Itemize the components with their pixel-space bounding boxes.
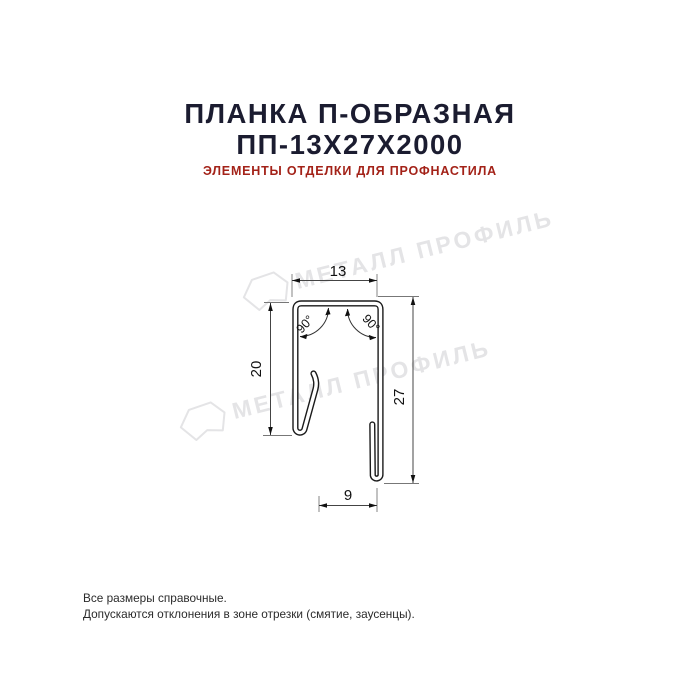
footer-note-line2: Допускаются отклонения в зоне отрезки (с… [83, 607, 415, 623]
dimension-right-height: 27 [378, 297, 419, 484]
footer-notes: Все размеры справочные. Допускаются откл… [83, 591, 415, 622]
metall-profil-logo-icon [177, 400, 230, 443]
dimension-bottom-opening: 9 [319, 487, 377, 512]
footer-note-line1: Все размеры справочные. [83, 591, 415, 607]
dimension-label-20: 20 [248, 361, 265, 378]
dimension-label-27: 27 [391, 389, 408, 406]
dimension-label-13: 13 [330, 263, 347, 280]
angle-left: 90° [294, 308, 331, 339]
dimension-label-9: 9 [344, 487, 352, 504]
watermark-text: МЕТАЛЛ ПРОФИЛЬ [229, 335, 493, 425]
watermark-2: МЕТАЛЛ ПРОФИЛЬ [177, 334, 495, 443]
angle-right: 90° [345, 309, 383, 340]
metall-profil-logo-icon [240, 270, 293, 313]
